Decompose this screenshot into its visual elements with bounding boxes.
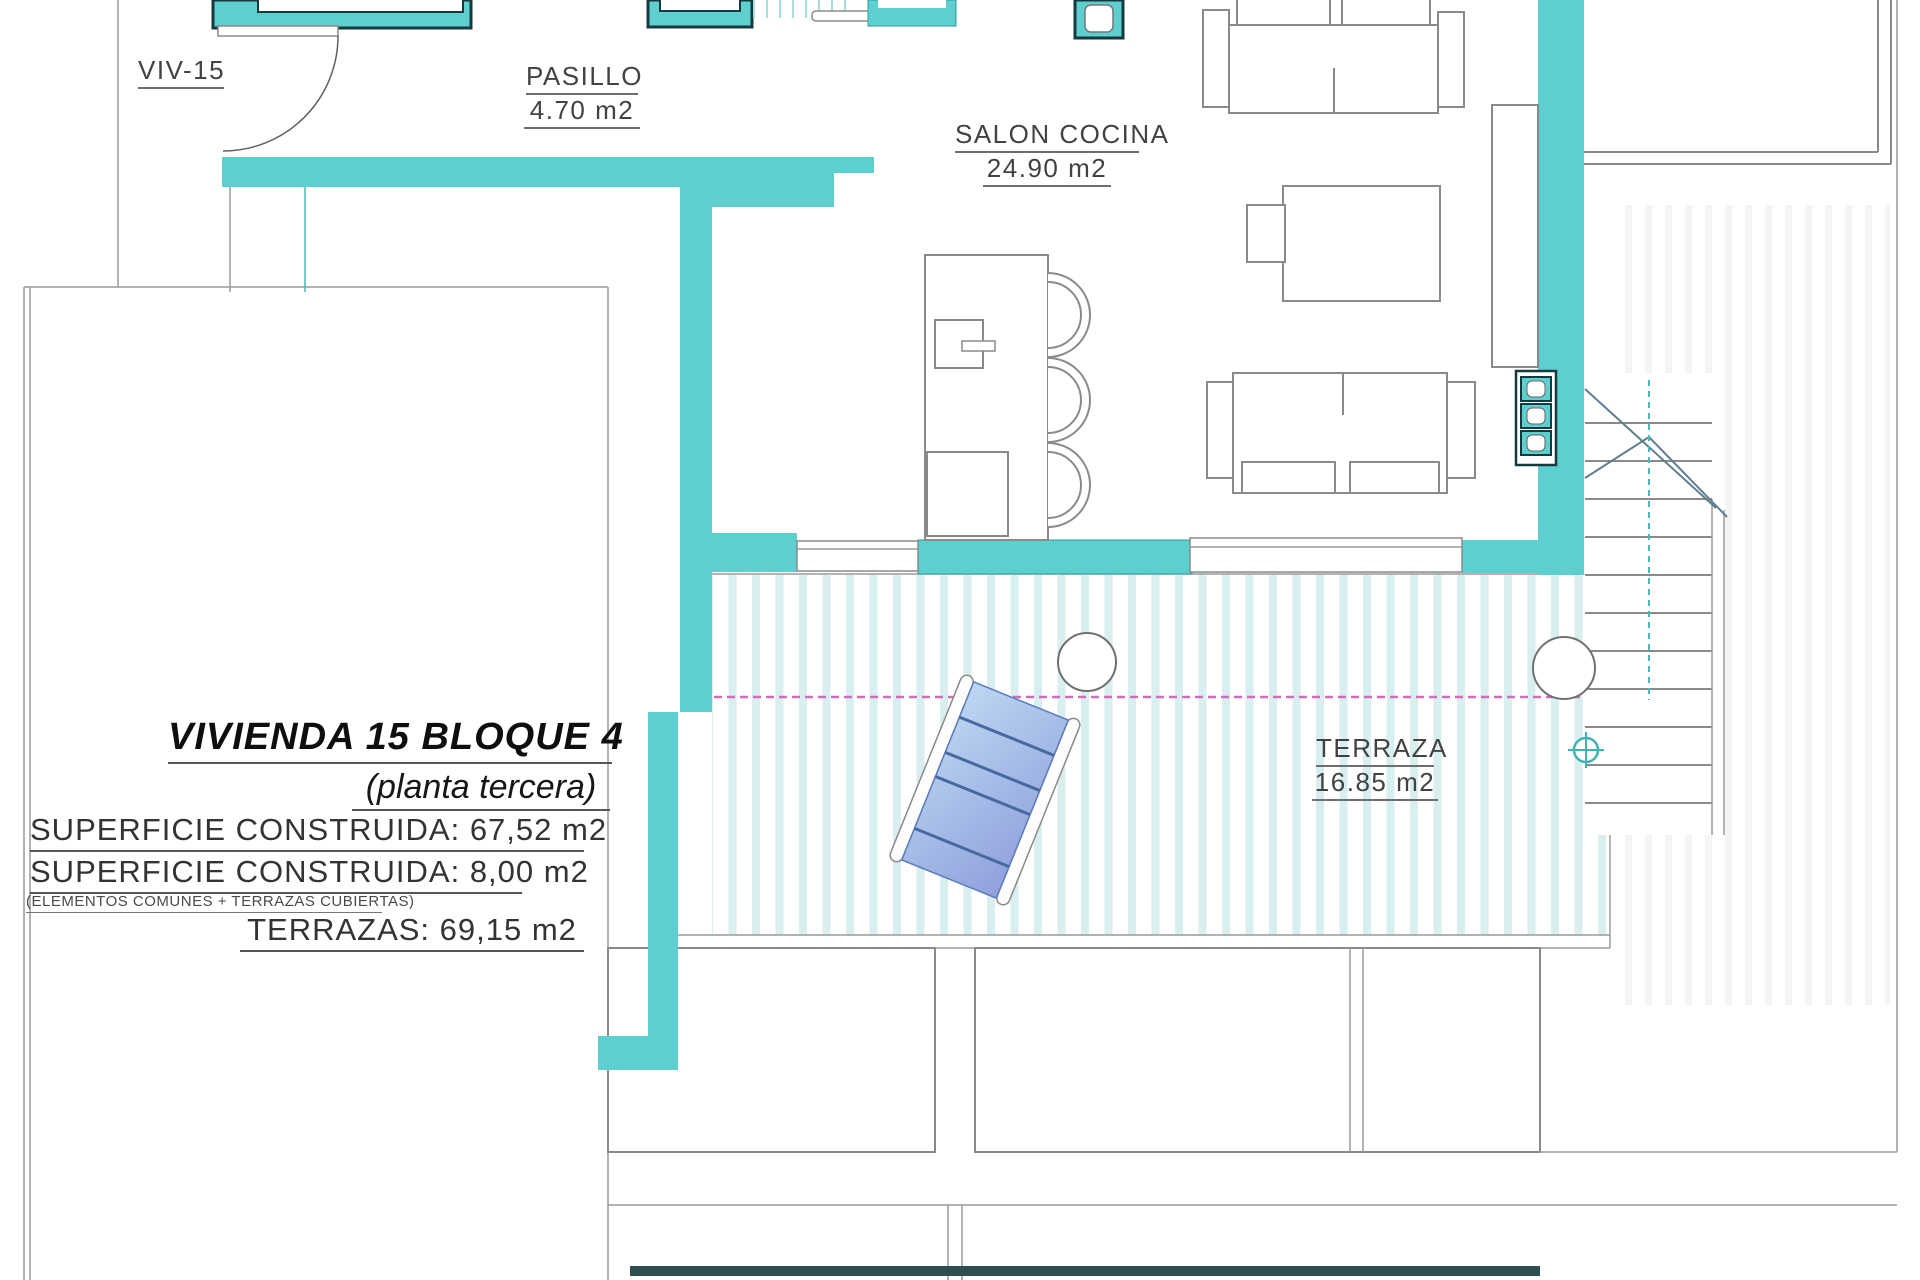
kitchen-island <box>925 255 1090 540</box>
title-block-surface-1: SUPERFICIE CONSTRUIDA: 67,52 m2 <box>30 814 584 852</box>
label-terraza-area: 16.85 m2 <box>1312 768 1438 801</box>
entry-door <box>218 26 338 151</box>
terrace-table-circle-right <box>1533 637 1595 699</box>
label-unit: VIV-15 <box>138 56 224 89</box>
label-terraza-name: TERRAZA <box>1316 734 1434 767</box>
floor-plan-svg <box>0 0 1920 1280</box>
top-wardrobe <box>213 0 471 28</box>
hob-burners <box>1516 371 1556 465</box>
bottom-wall <box>630 1266 1540 1276</box>
title-block-terrazas: TERRAZAS: 69,15 m2 <box>240 914 584 952</box>
column <box>1075 0 1123 38</box>
bar-stools <box>1048 273 1090 527</box>
sofa-top <box>1203 0 1464 113</box>
label-pasillo-area: 4.70 m2 <box>524 96 640 129</box>
title-block-note: (ELEMENTOS COMUNES + TERRAZAS CUBIERTAS) <box>26 894 382 913</box>
sliding-leaf <box>812 11 872 21</box>
title-block-title: VIVIENDA 15 BLOQUE 4 <box>168 718 612 764</box>
title-block-surface-2: SUPERFICIE CONSTRUIDA: 8,00 m2 <box>30 856 522 894</box>
floor-plan: VIV-15 PASILLO 4.70 m2 SALON COCINA 24.9… <box>0 0 1920 1280</box>
sliding-door-panel <box>918 540 1192 574</box>
sofa-bottom <box>1207 373 1475 493</box>
coffee-table <box>1247 186 1440 301</box>
hallway-fixtures <box>648 0 956 27</box>
door-swing-arc <box>223 36 338 151</box>
boundary-lines <box>24 0 608 1280</box>
label-pasillo-name: PASILLO <box>526 62 638 95</box>
faucet <box>962 341 995 351</box>
label-salon-name: SALON COCINA <box>955 120 1139 153</box>
terrace-deck <box>712 574 1610 935</box>
label-salon-area: 24.90 m2 <box>983 154 1111 187</box>
kitchen-counter <box>1492 105 1538 367</box>
door-frame <box>218 26 338 36</box>
terrace-table-circle-left <box>1058 633 1116 691</box>
hob <box>927 452 1008 536</box>
title-block-subtitle: (planta tercera) <box>352 770 610 811</box>
